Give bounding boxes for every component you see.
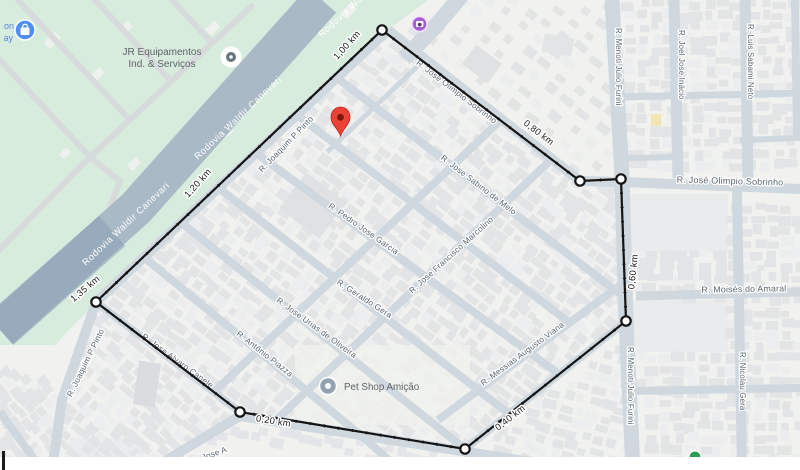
svg-text:R. Moisés do Amaral: R. Moisés do Amaral [701, 283, 786, 294]
svg-text:R. Nicolau Gera: R. Nicolau Gera [738, 352, 747, 411]
svg-text:ay: ay [3, 33, 13, 43]
svg-text:R. Menoti Julio Furini: R. Menoti Julio Furini [614, 28, 623, 106]
svg-text:on: on [4, 21, 14, 31]
svg-text:R. Menoti Julio Furini: R. Menoti Julio Furini [626, 347, 635, 425]
svg-text:R. Luis Sabami Neto: R. Luis Sabami Neto [746, 24, 755, 100]
svg-text:Pet Shop Amição: Pet Shop Amição [344, 382, 420, 393]
svg-text:R. Joel Jose Inácio: R. Joel Jose Inácio [677, 30, 686, 100]
svg-text:Ind. & Serviços: Ind. & Serviços [128, 59, 195, 70]
svg-text:JR Equipamentos: JR Equipamentos [123, 47, 202, 58]
